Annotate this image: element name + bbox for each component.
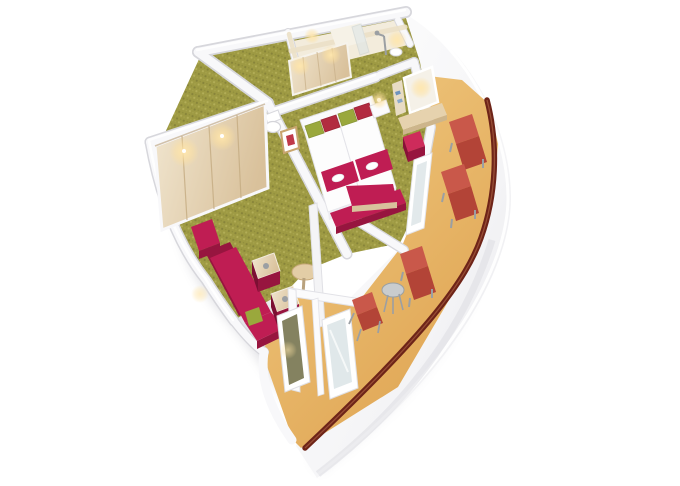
wall-picture: [281, 127, 299, 153]
floorplan-svg: [0, 0, 680, 486]
window-bench: [346, 184, 397, 212]
bedside-lamp-icon: [377, 98, 381, 102]
cabin-floorplan-image: [0, 0, 680, 486]
shower-head-icon: [375, 31, 380, 36]
mirror-light-glow: [410, 77, 432, 99]
